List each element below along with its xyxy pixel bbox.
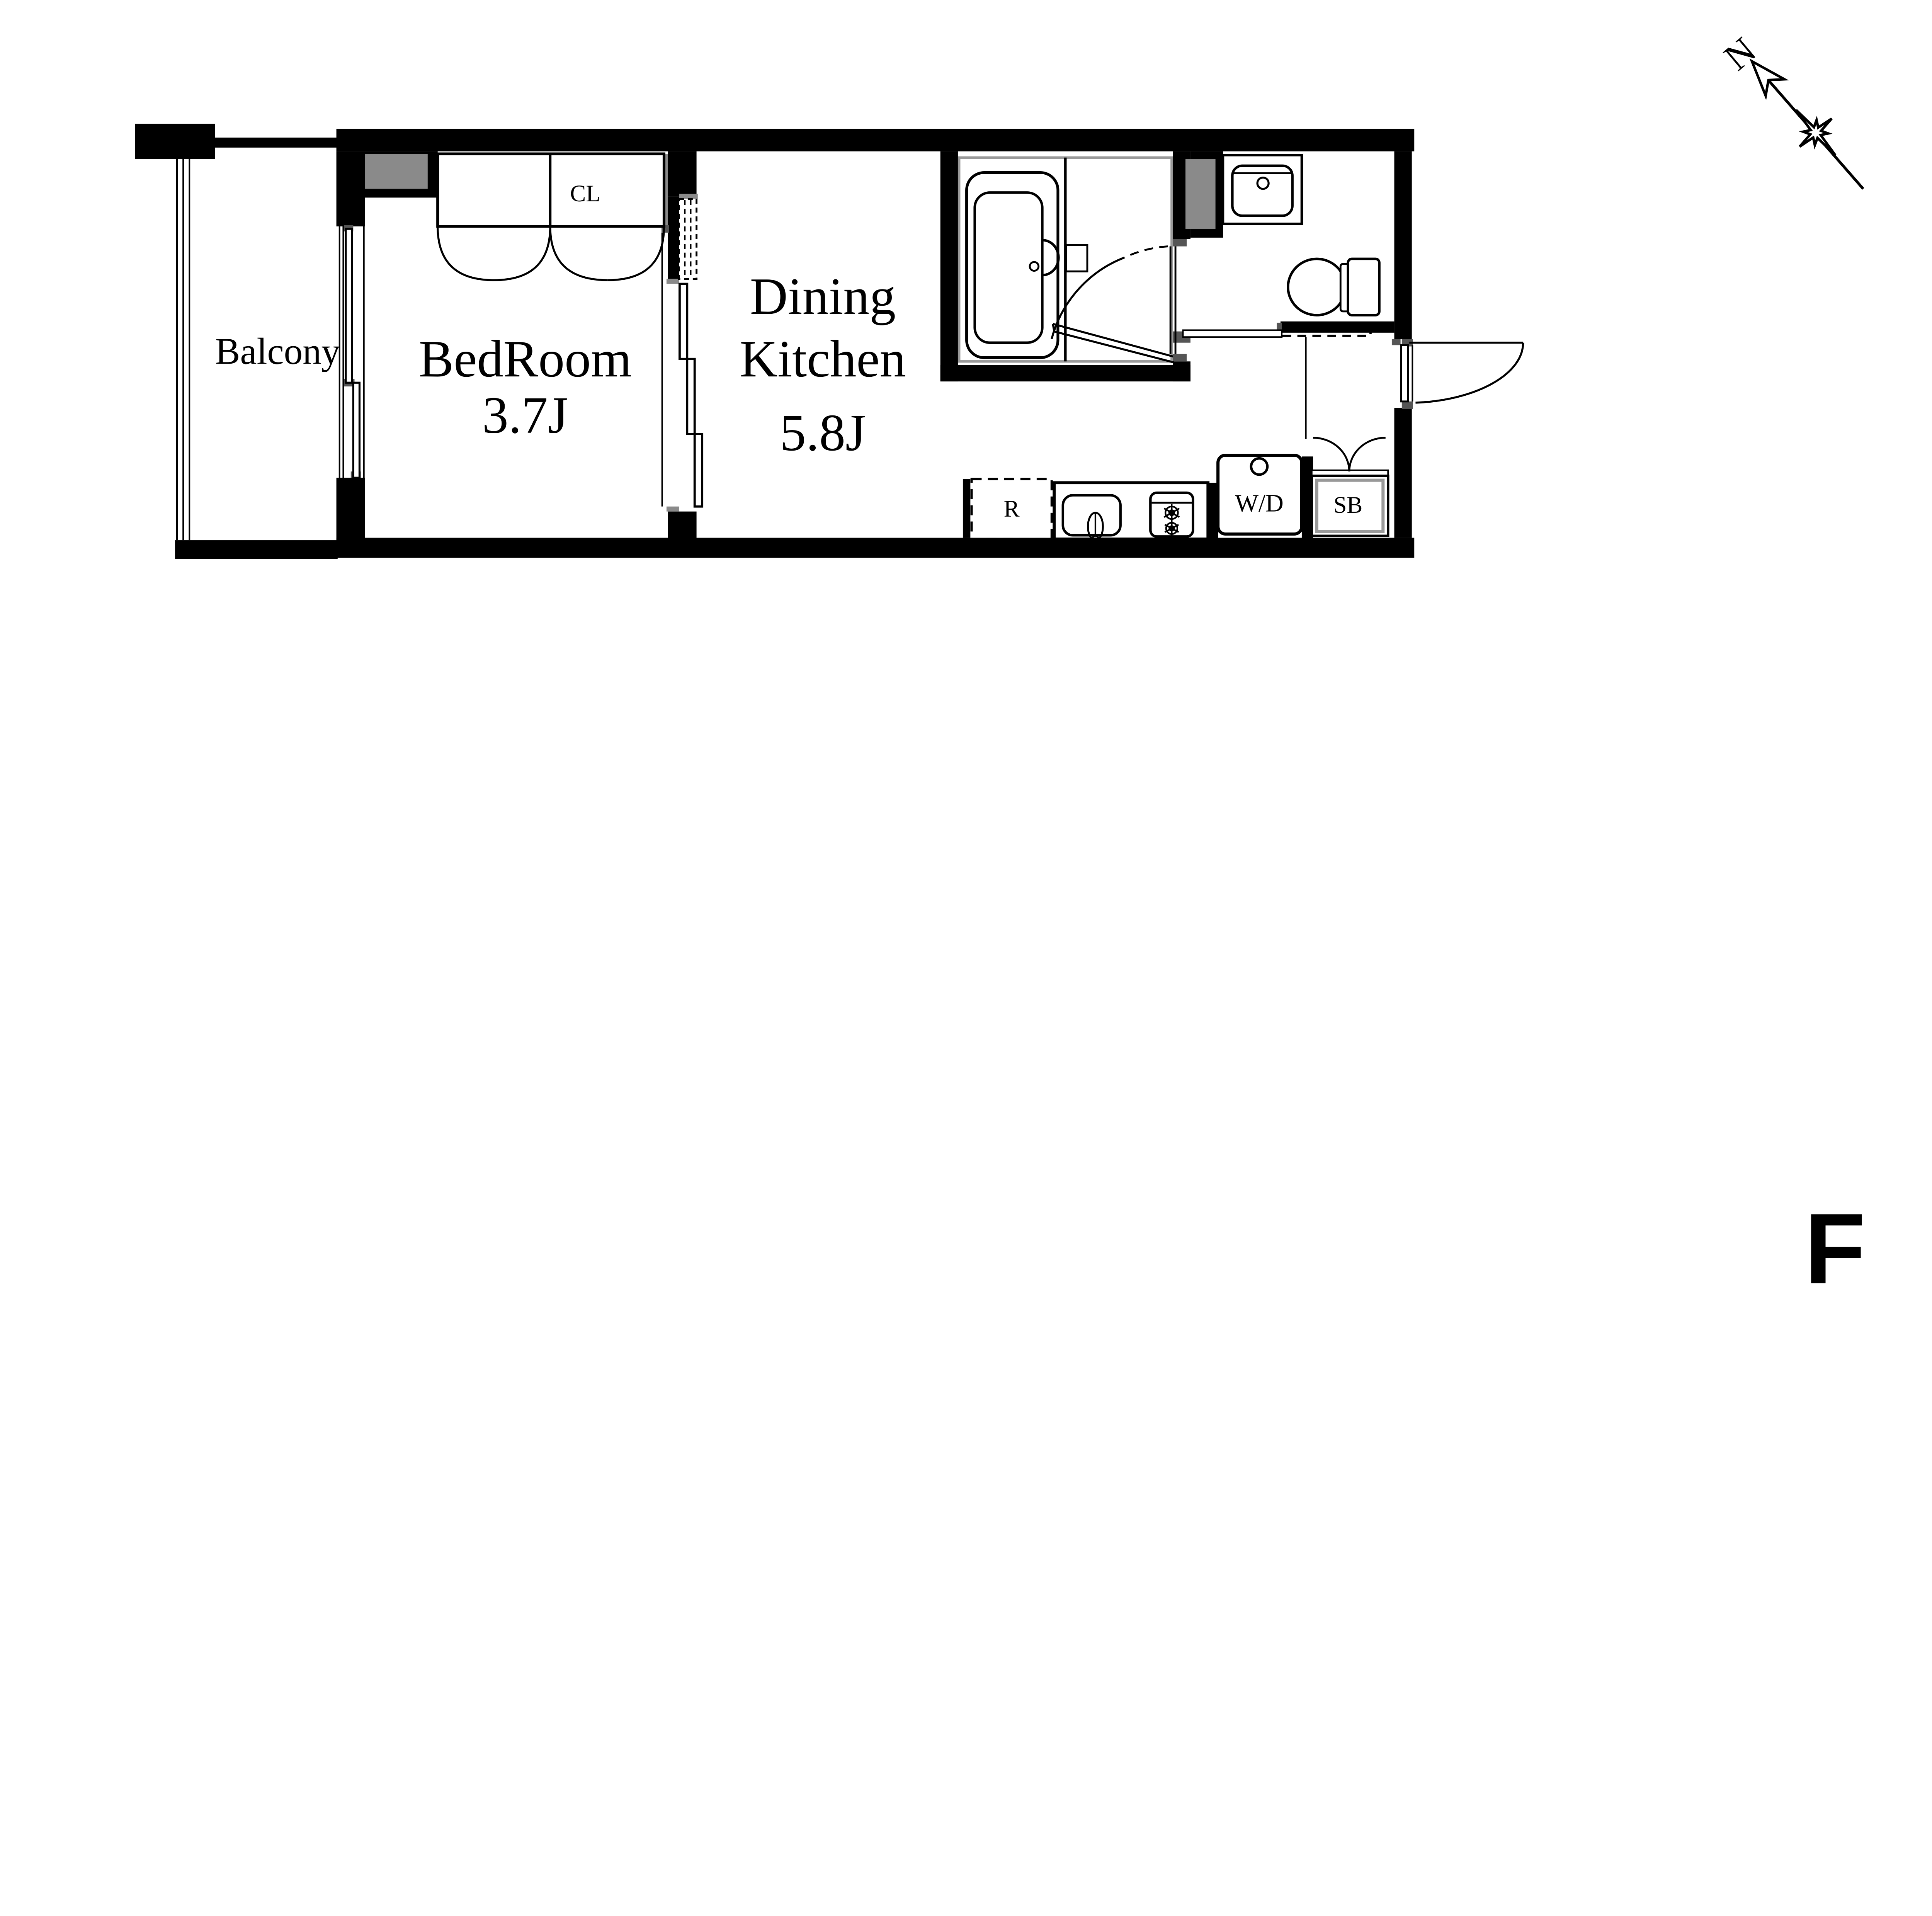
sliding-panel-2 bbox=[687, 359, 694, 434]
dining-kitchen-label-line2: Kitchen bbox=[740, 330, 906, 388]
washroom-threshold bbox=[1183, 330, 1282, 337]
wall-bath-bottom bbox=[940, 365, 1190, 381]
window-sash-upper bbox=[346, 229, 352, 383]
dining-kitchen-label-line1: Dining bbox=[750, 267, 896, 325]
wall-right-lower bbox=[1394, 408, 1412, 538]
entry-jamb-left bbox=[1392, 339, 1401, 345]
bath-door-jamb-bottom bbox=[1172, 354, 1187, 361]
duct-bedroom bbox=[365, 154, 428, 189]
partition-cap-mid bbox=[667, 279, 679, 284]
closet-label: CL bbox=[570, 180, 600, 207]
wall-bath-right-lower bbox=[1173, 361, 1190, 381]
floor-plan: N Balcony BedRoom 3.7J Dining Kitchen 5.… bbox=[0, 0, 1932, 1366]
partition-cap-bottom bbox=[667, 507, 679, 512]
bathtub-outer bbox=[967, 173, 1058, 358]
entrance-door-leaf bbox=[1401, 345, 1408, 402]
wall-left-upper bbox=[337, 151, 365, 226]
wall-partition-stub bbox=[668, 512, 696, 539]
wall-partition-top bbox=[668, 151, 696, 197]
bathroom-step bbox=[1066, 245, 1087, 271]
toilet-tank bbox=[1348, 259, 1379, 315]
wall-kitchen-stub bbox=[963, 479, 970, 538]
wall-right-upper bbox=[1394, 151, 1412, 339]
sliding-panel-3 bbox=[695, 434, 702, 507]
bath-door-leaf-cap bbox=[1053, 324, 1054, 331]
wall-bath-left bbox=[940, 151, 958, 381]
wall-left-lower bbox=[337, 478, 365, 540]
toilet-bowl bbox=[1288, 259, 1345, 315]
washer-dryer-label: W/D bbox=[1235, 489, 1284, 517]
wall-balcony-top bbox=[205, 138, 338, 148]
bedroom-label: BedRoom bbox=[419, 330, 632, 388]
window-sash-lower bbox=[353, 383, 359, 478]
refrigerator-label: R bbox=[1004, 496, 1020, 522]
sliding-panel-1 bbox=[680, 284, 687, 359]
dining-kitchen-size: 5.8J bbox=[780, 404, 866, 462]
entry-jamb-bottom bbox=[1402, 402, 1413, 409]
wall-top bbox=[337, 129, 1415, 151]
kitchen-counter bbox=[1054, 483, 1208, 539]
wall-bottom bbox=[337, 538, 1415, 558]
wall-partition-strip bbox=[668, 196, 679, 279]
floor-mark: F bbox=[1804, 1193, 1866, 1304]
bath-door-jamb-top bbox=[1172, 239, 1187, 246]
wall-balcony-bottom bbox=[175, 540, 338, 559]
shoe-box-label: SB bbox=[1333, 492, 1362, 518]
balcony-label: Balcony bbox=[215, 330, 340, 372]
wall-washroom-south bbox=[1281, 322, 1394, 333]
duct-pipe-space bbox=[1185, 159, 1216, 229]
wall-balcony-pillar bbox=[135, 124, 215, 159]
bedroom-size: 3.7J bbox=[482, 386, 568, 444]
